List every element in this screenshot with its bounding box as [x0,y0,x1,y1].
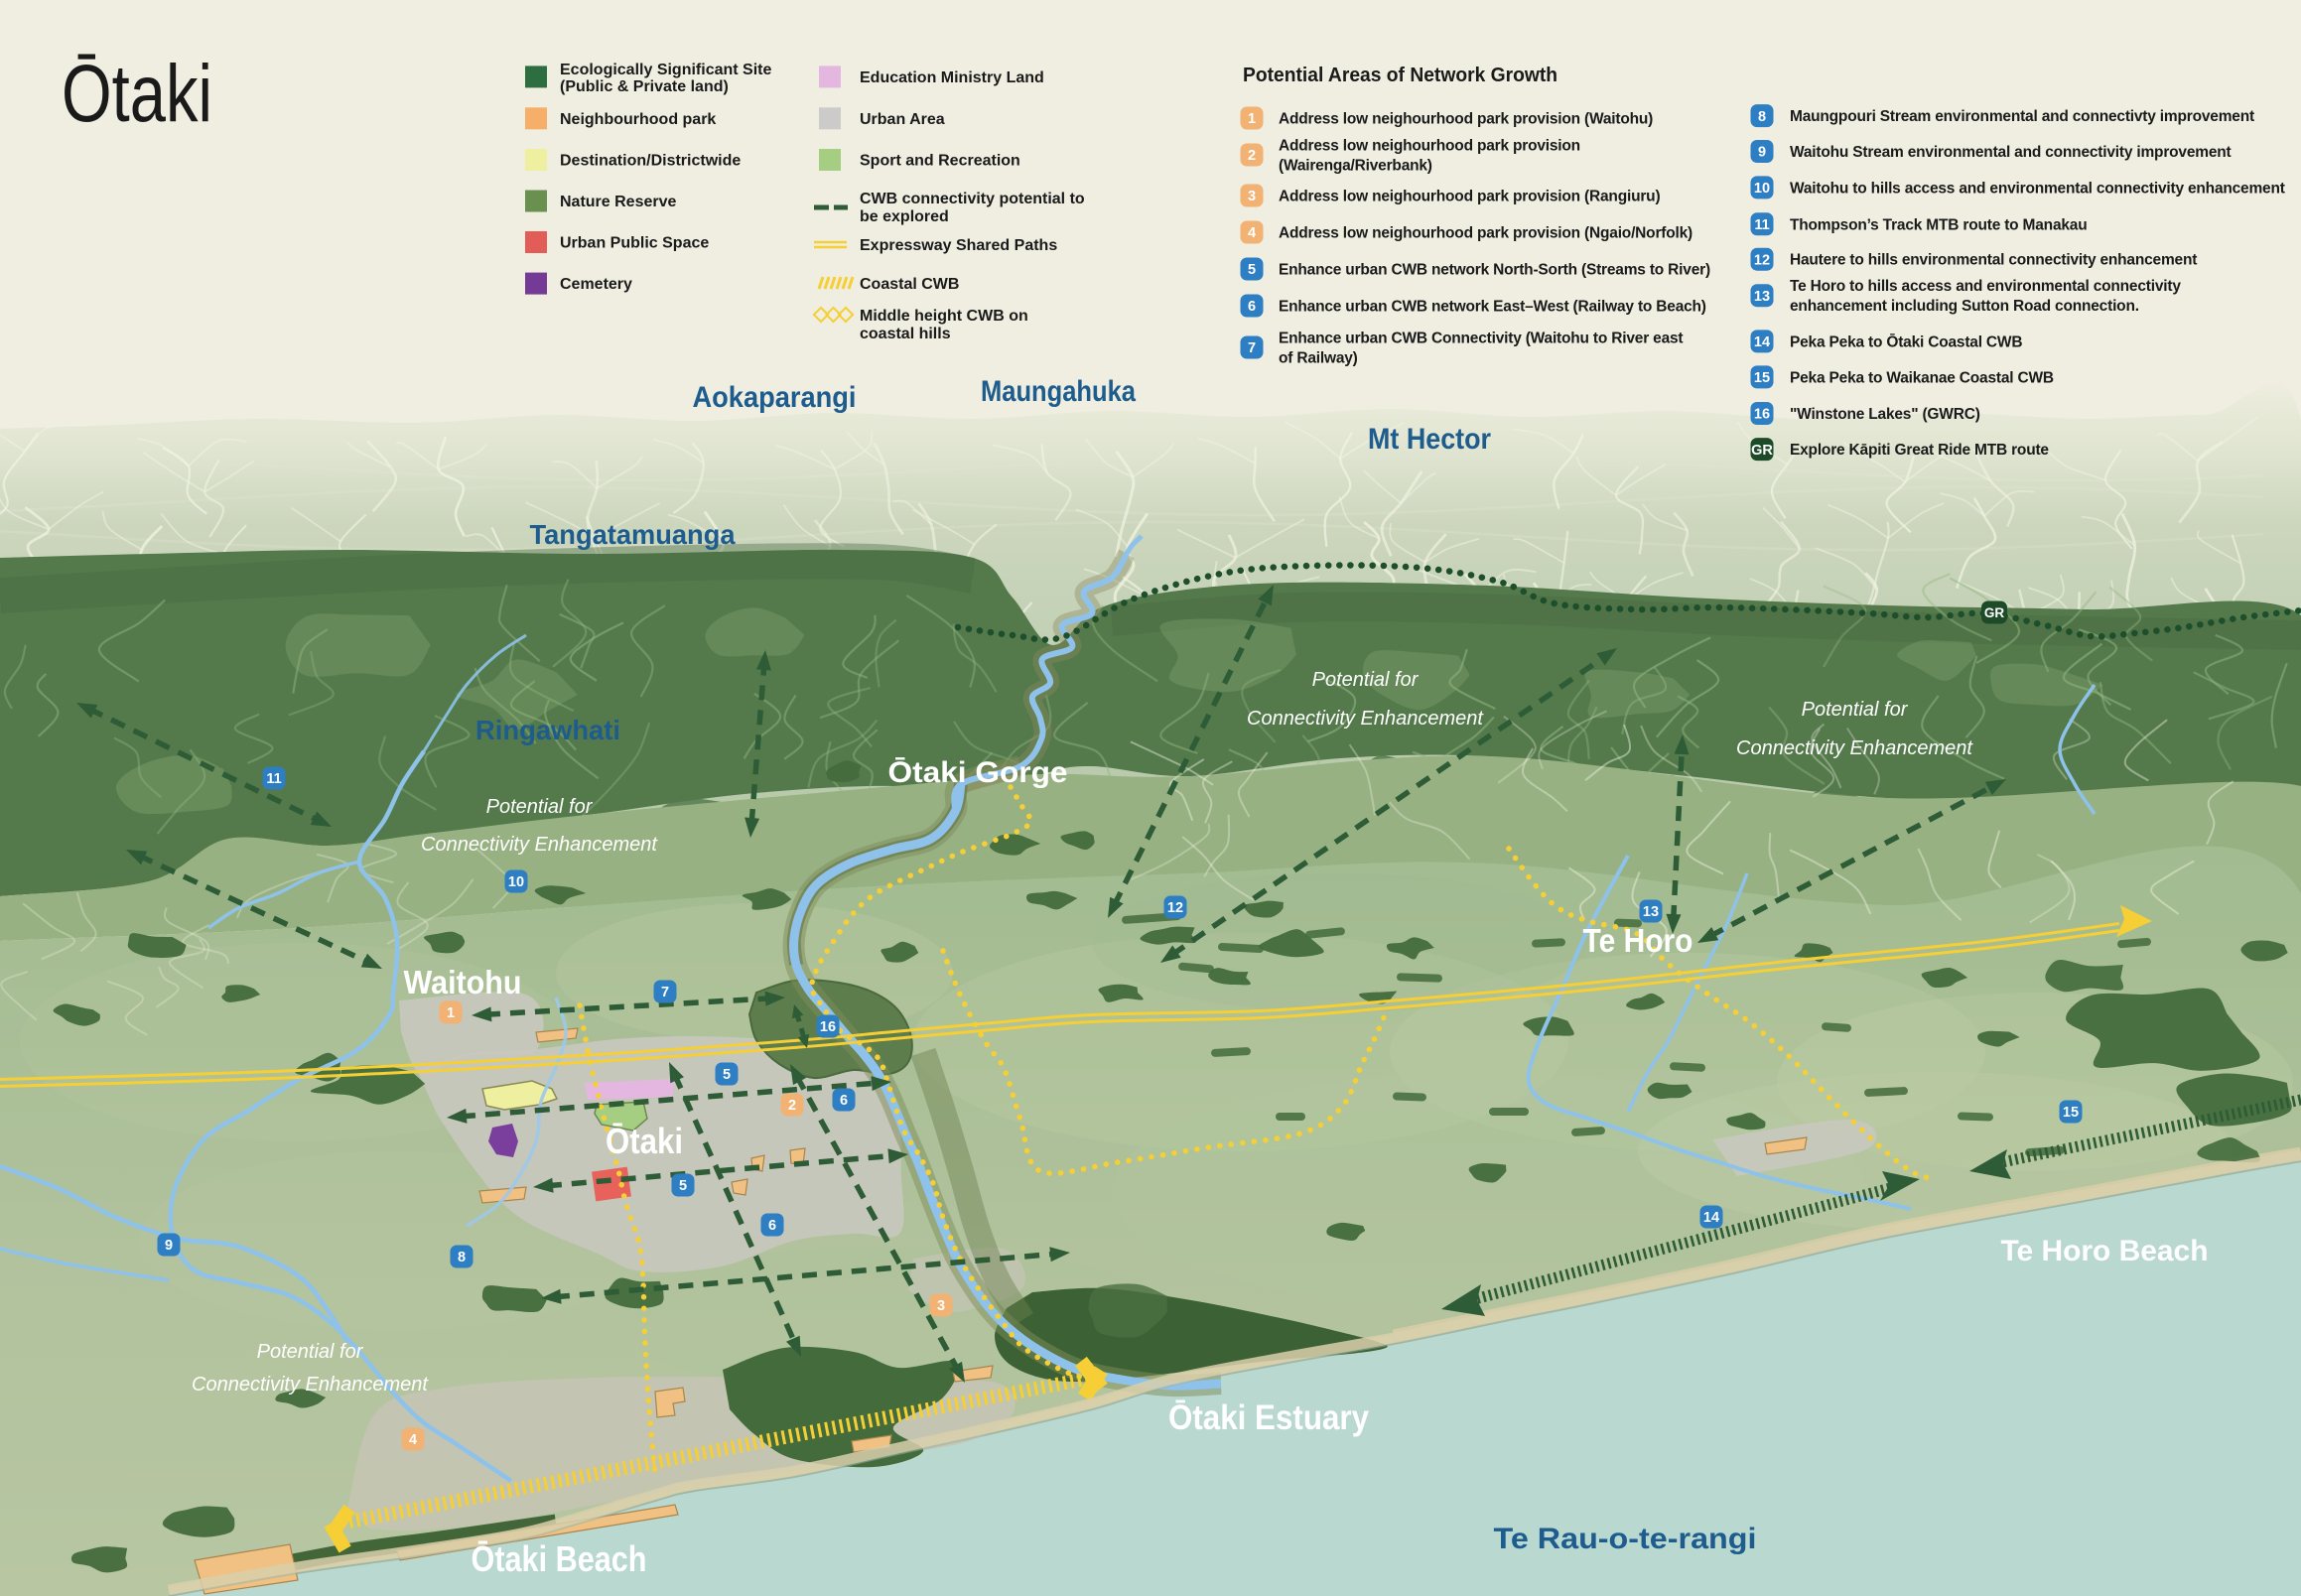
svg-text:Enhance urban CWB Connectivity: Enhance urban CWB Connectivity (Waitohu … [1279,331,1683,347]
svg-text:1: 1 [447,1005,455,1021]
svg-text:Enhance urban CWB network East: Enhance urban CWB network East–West (Rai… [1279,299,1706,316]
svg-text:be explored: be explored [860,208,949,225]
svg-text:Explore Kāpiti Great Ride MTB: Explore Kāpiti Great Ride MTB route [1790,442,2049,459]
svg-text:Te Horo: Te Horo [1583,922,1693,959]
svg-text:16: 16 [820,1019,836,1035]
svg-text:Ōtaki: Ōtaki [606,1121,683,1161]
svg-text:5: 5 [1248,262,1256,278]
svg-text:7: 7 [1248,340,1256,356]
svg-text:12: 12 [1754,252,1770,268]
svg-text:Ecologically Significant Site: Ecologically Significant Site [560,62,771,78]
svg-text:6: 6 [840,1093,848,1109]
svg-text:Enhance urban CWB network Nort: Enhance urban CWB network North-Sorth (S… [1279,262,1710,279]
svg-text:of Railway): of Railway) [1279,350,1358,367]
svg-text:Sport and Recreation: Sport and Recreation [860,153,1020,170]
svg-text:Hautere to hills environmental: Hautere to hills environmental connectiv… [1790,252,2197,269]
svg-text:(Public & Private land): (Public & Private land) [560,78,729,95]
svg-text:14: 14 [1703,1210,1719,1226]
svg-text:GR: GR [1984,605,2005,620]
svg-text:Peka Peka to Ōtaki Coastal CWB: Peka Peka to Ōtaki Coastal CWB [1790,332,2022,350]
svg-text:Potential for: Potential for [257,1341,364,1363]
svg-text:2: 2 [788,1098,796,1114]
svg-text:Peka Peka to Waikanae Coastal: Peka Peka to Waikanae Coastal CWB [1790,369,2054,386]
svg-text:14: 14 [1754,334,1770,350]
svg-text:13: 13 [1643,904,1659,920]
svg-text:12: 12 [1167,900,1183,916]
svg-text:Neighbourhood park: Neighbourhood park [560,111,716,128]
svg-text:Urban Area: Urban Area [860,111,945,128]
svg-text:Cemetery: Cemetery [560,276,632,293]
svg-text:15: 15 [2063,1105,2079,1121]
svg-text:Waitohu: Waitohu [404,964,522,1000]
svg-text:Te Horo Beach: Te Horo Beach [2001,1235,2209,1267]
svg-text:(Wairenga/Riverbank): (Wairenga/Riverbank) [1279,158,1432,175]
svg-text:Address low neighourhood park: Address low neighourhood park provision … [1279,225,1692,242]
svg-text:Ōtaki: Ōtaki [62,49,212,139]
svg-text:Thompson’s Track MTB route to: Thompson’s Track MTB route to Manakau [1790,216,2087,233]
svg-text:8: 8 [458,1250,466,1265]
svg-text:Ōtaki Beach: Ōtaki Beach [472,1538,647,1579]
svg-text:5: 5 [679,1178,687,1194]
svg-text:4: 4 [1248,225,1256,241]
svg-text:Waitohu Stream environmental a: Waitohu Stream environmental and connect… [1790,144,2232,161]
svg-text:3: 3 [937,1298,945,1314]
svg-text:8: 8 [1758,109,1766,125]
svg-text:13: 13 [1754,289,1770,305]
svg-text:10: 10 [508,874,524,890]
svg-text:Address low neighourhood park: Address low neighourhood park provision … [1279,111,1653,128]
svg-text:Destination/Districtwide: Destination/Districtwide [560,153,741,170]
svg-text:Connectivity Enhancement: Connectivity Enhancement [1736,737,1973,759]
svg-text:Maungpouri Stream environmenta: Maungpouri Stream environmental and conn… [1790,108,2254,125]
svg-text:"Winstone Lakes" (GWRC): "Winstone Lakes" (GWRC) [1790,406,1980,423]
svg-text:enhancement including Sutton R: enhancement including Sutton Road connec… [1790,298,2139,315]
svg-text:Middle height CWB on: Middle height CWB on [860,308,1028,325]
svg-text:Te Horo to hills access and en: Te Horo to hills access and environmenta… [1790,278,2181,295]
svg-text:Potential for: Potential for [1802,699,1909,721]
svg-text:Ōtaki Estuary: Ōtaki Estuary [1168,1398,1369,1437]
svg-text:6: 6 [1248,299,1256,315]
svg-text:Ōtaki Gorge: Ōtaki Gorge [888,756,1068,789]
svg-text:Address low neighourhood park: Address low neighourhood park provision [1279,138,1580,155]
svg-text:15: 15 [1754,370,1770,386]
svg-text:9: 9 [1758,145,1766,161]
svg-text:11: 11 [266,771,281,787]
svg-text:Nature Reserve: Nature Reserve [560,194,677,210]
svg-text:16: 16 [1754,407,1770,423]
svg-text:Ringawhati: Ringawhati [475,715,620,745]
svg-text:Potential Areas of Network Gro: Potential Areas of Network Growth [1243,65,1557,86]
svg-text:10: 10 [1754,181,1770,197]
svg-text:Mt Hector: Mt Hector [1368,423,1491,456]
svg-text:Waitohu to hills access and en: Waitohu to hills access and environmenta… [1790,180,2285,197]
svg-text:Connectivity Enhancement: Connectivity Enhancement [421,834,658,856]
svg-text:Potential for: Potential for [1312,669,1420,691]
svg-text:coastal hills: coastal hills [860,326,951,342]
svg-text:Aokaparangi: Aokaparangi [693,381,857,414]
svg-text:11: 11 [1754,217,1769,233]
svg-text:Tangatamuanga: Tangatamuanga [530,519,736,550]
svg-text:Connectivity Enhancement: Connectivity Enhancement [1247,708,1484,730]
svg-text:Maungahuka: Maungahuka [981,375,1136,408]
svg-text:2: 2 [1248,148,1256,164]
svg-text:Expressway Shared Paths: Expressway Shared Paths [860,237,1057,254]
svg-text:Urban Public Space: Urban Public Space [560,235,709,252]
svg-text:Education Ministry Land: Education Ministry Land [860,69,1044,86]
svg-text:5: 5 [723,1067,731,1083]
svg-text:9: 9 [165,1238,173,1254]
svg-text:Address low neighourhood park: Address low neighourhood park provision … [1279,189,1660,205]
svg-text:Connectivity Enhancement: Connectivity Enhancement [192,1374,429,1396]
svg-text:7: 7 [661,985,669,1000]
svg-text:GR: GR [1751,443,1773,459]
svg-text:Coastal CWB: Coastal CWB [860,276,959,293]
svg-text:Te Rau-o-te-rangi: Te Rau-o-te-rangi [1494,1523,1757,1555]
svg-text:4: 4 [409,1432,417,1448]
svg-text:Potential for: Potential for [486,796,594,818]
svg-text:3: 3 [1248,189,1256,204]
svg-text:1: 1 [1248,111,1256,127]
svg-text:CWB connectivity potential to: CWB connectivity potential to [860,191,1085,207]
svg-text:6: 6 [768,1218,776,1234]
